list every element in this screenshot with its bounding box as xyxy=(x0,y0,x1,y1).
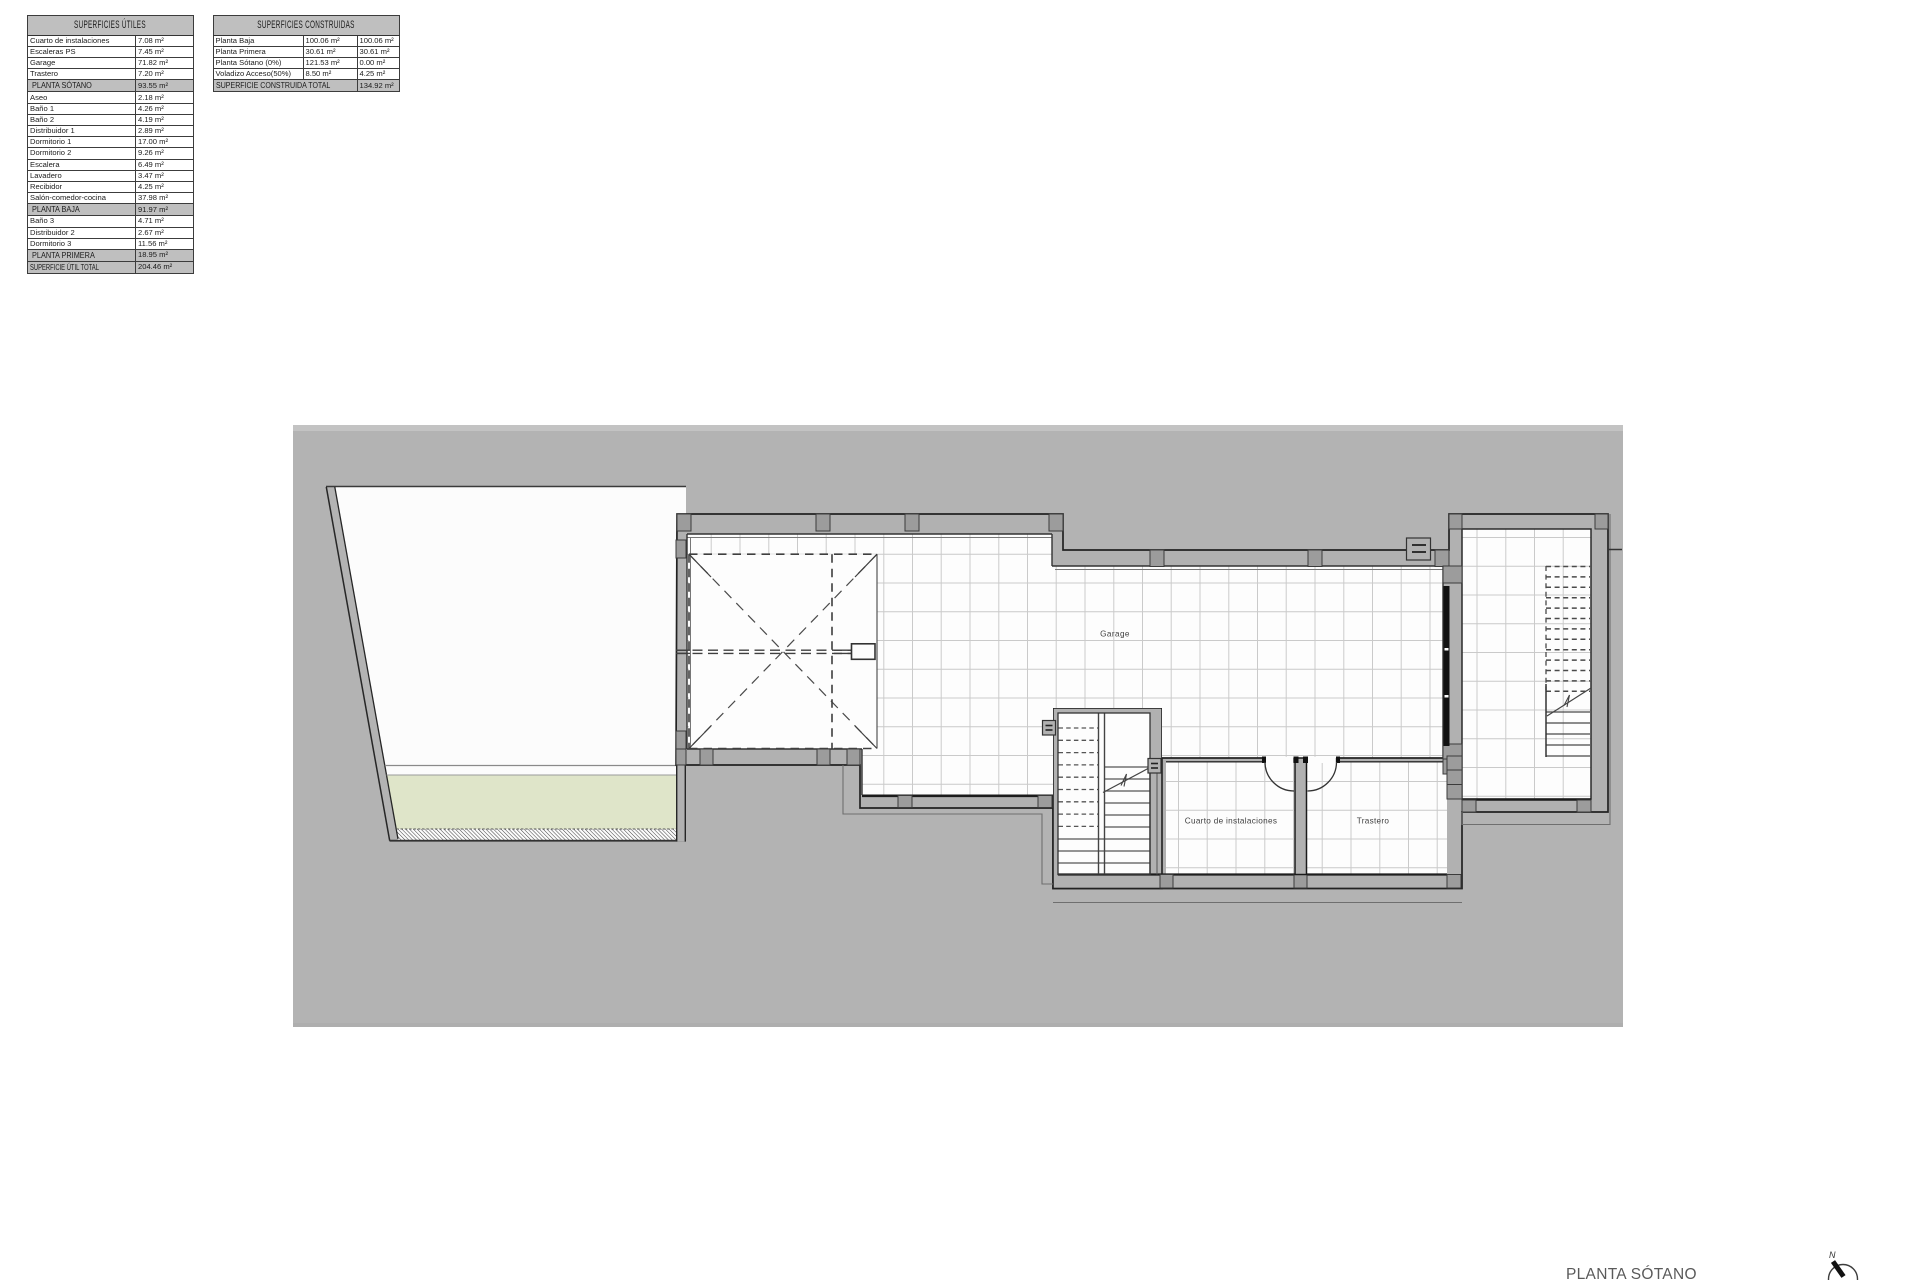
svg-text:N: N xyxy=(1829,1250,1836,1260)
svg-text:Trastero: Trastero xyxy=(1357,817,1390,826)
svg-text:Garage: Garage xyxy=(1100,630,1130,639)
svg-text:Cuarto de instalaciones: Cuarto de instalaciones xyxy=(1185,817,1277,826)
